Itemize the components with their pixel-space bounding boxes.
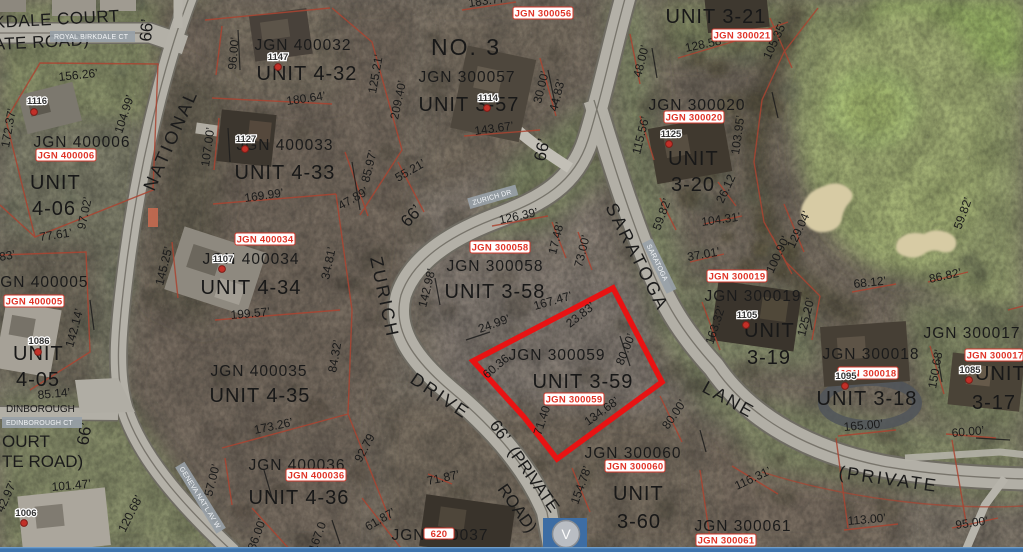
svg-text:UNIT 3-58: UNIT 3-58: [445, 281, 546, 303]
svg-text:620: 620: [431, 529, 448, 540]
svg-text:JGN 300061: JGN 300061: [694, 518, 791, 535]
svg-text:UNIT 4-36: UNIT 4-36: [249, 487, 350, 509]
svg-text:UNIT: UNIT: [668, 148, 719, 170]
svg-text:1086: 1086: [28, 336, 49, 347]
svg-text:JGN 300058: JGN 300058: [472, 243, 529, 254]
svg-text:1085: 1085: [959, 365, 981, 376]
svg-text:66’: 66’: [136, 18, 157, 42]
svg-text:JGN 300018: JGN 300018: [822, 346, 919, 363]
svg-text:JGN 400035: JGN 400035: [210, 363, 307, 380]
svg-text:UNIT: UNIT: [613, 483, 664, 505]
svg-text:UNIT: UNIT: [744, 320, 795, 342]
svg-text:JGN 400005: JGN 400005: [6, 297, 63, 308]
svg-text:83’: 83’: [0, 247, 16, 264]
svg-text:DINBOROUGH: DINBOROUGH: [6, 404, 75, 415]
svg-text:JGN 300061: JGN 300061: [698, 536, 755, 547]
svg-text:1006: 1006: [15, 508, 36, 519]
svg-text:JGN 400005: JGN 400005: [0, 274, 89, 291]
svg-text:JGN 400036: JGN 400036: [288, 471, 345, 482]
svg-text:JGN 300060: JGN 300060: [584, 445, 681, 462]
svg-text:1125: 1125: [661, 129, 682, 140]
svg-text:3-17: 3-17: [972, 392, 1016, 414]
svg-text:4-06: 4-06: [32, 198, 76, 220]
svg-text:JGN 300058: JGN 300058: [446, 258, 543, 275]
svg-text:JGN 300020: JGN 300020: [666, 113, 723, 124]
svg-text:JGN 300019: JGN 300019: [704, 288, 801, 305]
svg-text:V: V: [561, 526, 571, 542]
svg-text:3-19: 3-19: [747, 347, 791, 369]
svg-text:JGN 300059: JGN 300059: [508, 347, 605, 364]
svg-text:3-60: 3-60: [617, 511, 661, 533]
svg-text:1107: 1107: [213, 254, 234, 265]
svg-text:JGN 300019: JGN 300019: [709, 272, 766, 283]
svg-text:1114: 1114: [478, 93, 499, 104]
svg-text:JGN 300059: JGN 300059: [546, 395, 603, 406]
svg-text:60.00’: 60.00’: [951, 423, 985, 440]
svg-text:JGN 300057: JGN 300057: [418, 69, 515, 86]
svg-text:TE ROAD): TE ROAD): [2, 452, 83, 471]
svg-text:1105: 1105: [737, 310, 758, 321]
svg-text:UNIT: UNIT: [30, 172, 81, 194]
svg-text:EDINBOROUGH CT: EDINBOROUGH CT: [6, 420, 73, 427]
svg-text:JGN 300056: JGN 300056: [515, 9, 572, 20]
svg-text:UNIT 3-18: UNIT 3-18: [817, 388, 918, 410]
svg-text:JGN 300060: JGN 300060: [607, 462, 664, 473]
svg-text:JGN 300021: JGN 300021: [714, 31, 771, 42]
svg-text:JGN 400006: JGN 400006: [33, 134, 130, 151]
svg-text:UNIT 4-33: UNIT 4-33: [235, 162, 336, 184]
svg-text:UNIT 3-21: UNIT 3-21: [666, 6, 767, 28]
svg-text:3-20: 3-20: [671, 174, 715, 196]
svg-text:JGN 400034: JGN 400034: [237, 235, 294, 246]
svg-text:OURT: OURT: [2, 432, 50, 451]
svg-text:JGN 300017: JGN 300017: [923, 325, 1020, 342]
svg-text:UNIT 3-57: UNIT 3-57: [419, 94, 520, 116]
svg-text:NO. 3: NO. 3: [431, 34, 501, 60]
svg-text:UNIT: UNIT: [975, 363, 1023, 385]
svg-text:ROYAL BIRKDALE CT: ROYAL BIRKDALE CT: [54, 34, 129, 41]
svg-text:96.00’: 96.00’: [225, 36, 242, 70]
svg-text:1127: 1127: [236, 134, 257, 145]
svg-text:1147: 1147: [268, 52, 289, 63]
svg-text:UNIT 4-32: UNIT 4-32: [257, 63, 358, 85]
svg-text:85.14’: 85.14’: [37, 385, 71, 402]
svg-text:1095: 1095: [835, 371, 857, 382]
svg-text:JGN 400006: JGN 400006: [38, 151, 95, 162]
svg-text:UNIT 4-34: UNIT 4-34: [201, 277, 302, 299]
svg-text:UNIT 3-59: UNIT 3-59: [533, 371, 634, 393]
svg-text:1116: 1116: [27, 96, 47, 107]
svg-text:JGN 300017: JGN 300017: [967, 351, 1023, 362]
svg-text:UNIT 4-35: UNIT 4-35: [210, 385, 311, 407]
